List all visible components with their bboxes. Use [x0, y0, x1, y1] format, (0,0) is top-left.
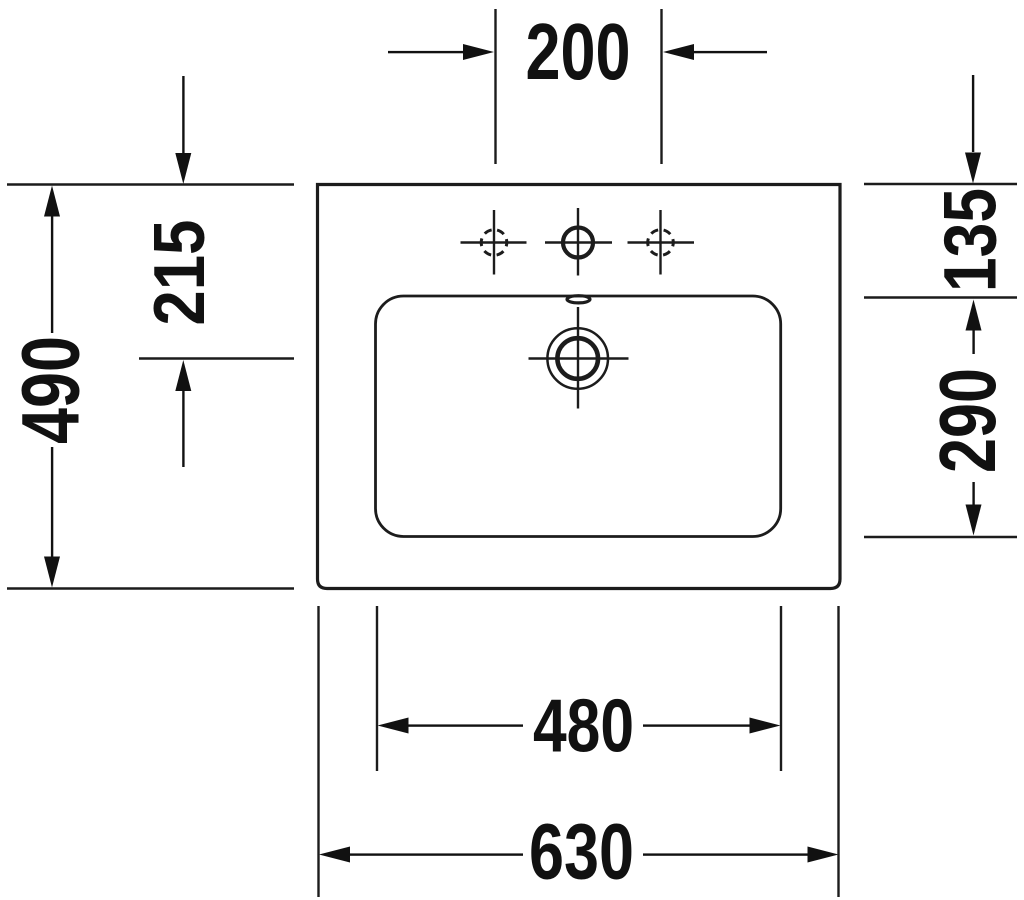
svg-text:215: 215: [140, 220, 220, 326]
svg-text:630: 630: [529, 807, 634, 896]
svg-text:135: 135: [929, 188, 1012, 292]
svg-text:480: 480: [533, 683, 634, 767]
svg-text:490: 490: [6, 336, 97, 444]
svg-text:290: 290: [923, 368, 1012, 473]
svg-text:200: 200: [526, 7, 631, 96]
